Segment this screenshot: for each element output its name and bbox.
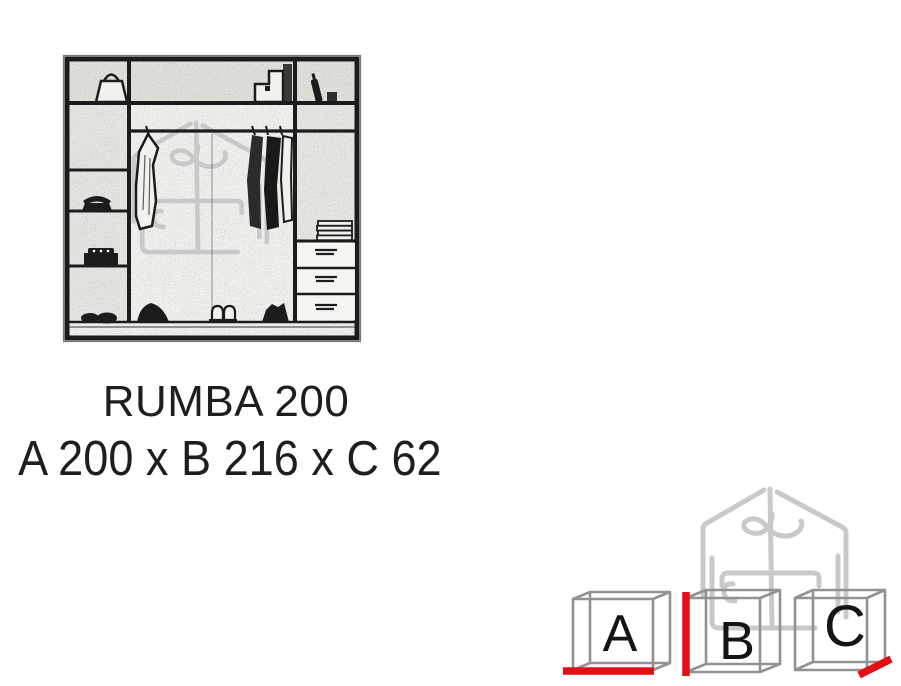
dimension-cube-a: A xyxy=(563,592,670,671)
clogs-icon xyxy=(209,306,237,323)
cup-icon xyxy=(327,92,337,101)
cube-c-label: C xyxy=(824,594,866,659)
bag-icon xyxy=(96,81,127,102)
dimension-key: A B C xyxy=(563,590,891,676)
catalog-page: A B C RUMBA 200 A 200 x B 216 x C 62 xyxy=(0,0,901,686)
linen-stack-icon xyxy=(317,221,352,240)
product-dimensions: A 200 x B 216 x C 62 xyxy=(18,431,434,487)
cube-a-label: A xyxy=(603,605,638,663)
page-graphics: A B C xyxy=(0,0,901,686)
product-name: RUMBA 200 xyxy=(0,377,452,427)
wardrobe-diagram xyxy=(64,56,361,342)
cube-b-label: B xyxy=(719,611,755,671)
hanging-clothes-icon xyxy=(247,126,292,230)
small-appliance-icon xyxy=(84,248,118,265)
dimension-cube-c: C xyxy=(795,590,891,675)
